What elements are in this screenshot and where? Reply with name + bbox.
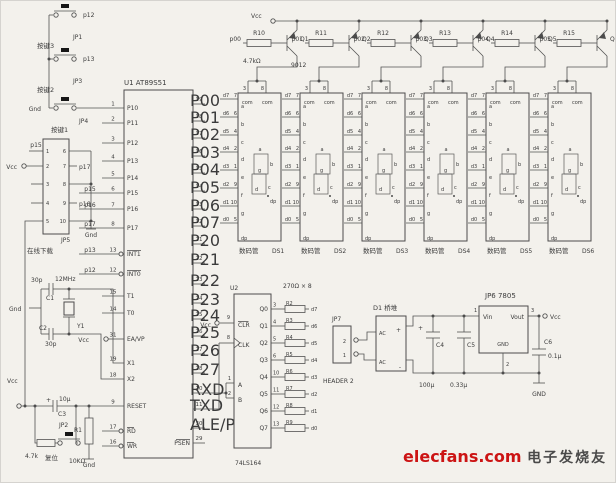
svg-text:6: 6	[482, 111, 485, 117]
svg-text:g: g	[427, 211, 430, 217]
svg-text:Gnd: Gnd	[29, 106, 41, 113]
svg-text:dp: dp	[580, 199, 586, 205]
mcu-pin-p22: 23P22	[190, 271, 220, 290]
svg-text:9: 9	[63, 201, 66, 207]
svg-text:p17: p17	[84, 221, 96, 228]
mcu-pin-psen: 29PSEN	[174, 436, 205, 447]
svg-text:d2: d2	[223, 182, 229, 188]
svg-text:c: c	[303, 140, 306, 146]
mcu-pin-p02: 37P02	[190, 125, 220, 144]
svg-text:2: 2	[544, 146, 547, 152]
svg-text:16: 16	[110, 440, 117, 446]
svg-text:d7: d7	[347, 93, 353, 99]
svg-text:P27: P27	[190, 360, 220, 379]
svg-text:f: f	[365, 193, 367, 199]
reset-circuit: Vcc+10μC3JP24.7k复位R110KΩGnd	[7, 378, 124, 469]
svg-text:P05: P05	[190, 178, 220, 197]
svg-text:JP2: JP2	[58, 422, 68, 429]
watermark-tld: com	[484, 447, 521, 466]
svg-text:b: b	[518, 162, 521, 168]
svg-text:d: d	[441, 187, 444, 193]
svg-text:P26: P26	[190, 341, 220, 360]
svg-text:dp: dp	[518, 199, 524, 205]
svg-text:HEADER 2: HEADER 2	[323, 378, 354, 385]
svg-text:dp: dp	[270, 199, 276, 205]
svg-text:10: 10	[60, 219, 66, 225]
svg-text:U2: U2	[230, 285, 238, 292]
svg-text:f: f	[241, 193, 243, 199]
svg-text:6: 6	[111, 187, 115, 193]
svg-text:p13: p13	[84, 247, 96, 254]
svg-text:p04: p04	[478, 36, 490, 43]
svg-text:74LS164: 74LS164	[235, 460, 261, 467]
mcu-pin-ale-p: 30ALE/P	[190, 415, 235, 434]
transistor-q1: p00R10Q14.7kΩ9012	[230, 20, 309, 83]
svg-text:10: 10	[479, 200, 485, 206]
transistor-q2: p01R11Q2	[292, 20, 371, 83]
mcu-pin-p04: 35P04	[190, 160, 220, 179]
mcu-u1: U1 AT89S511P102P113P124P135P14p156P15p16…	[78, 79, 235, 458]
svg-text:d: d	[489, 157, 492, 163]
svg-text:6: 6	[296, 111, 299, 117]
watermark-cn: 电子发烧友	[527, 450, 607, 466]
svg-text:3: 3	[273, 303, 276, 309]
svg-text:R13: R13	[439, 30, 451, 37]
svg-text:EA/VP: EA/VP	[127, 336, 145, 343]
svg-text:9: 9	[420, 182, 423, 188]
svg-text:a: a	[303, 104, 306, 110]
svg-text:3: 3	[553, 86, 556, 92]
svg-text:dp: dp	[303, 236, 309, 242]
svg-text:2: 2	[420, 146, 423, 152]
svg-text:9: 9	[544, 182, 547, 188]
crystal-circuit: Gnd30pC112MHzY1C230p	[9, 276, 124, 379]
svg-text:数码管: 数码管	[239, 246, 259, 255]
svg-text:d1: d1	[223, 200, 229, 206]
svg-text:P04: P04	[190, 160, 220, 179]
svg-text:d7: d7	[471, 93, 477, 99]
svg-text:INT0: INT0	[127, 271, 141, 278]
svg-text:dp: dp	[489, 236, 495, 242]
svg-text:5: 5	[111, 172, 115, 178]
svg-text:d5: d5	[471, 129, 477, 135]
svg-text:p02: p02	[354, 36, 366, 43]
svg-text:4: 4	[544, 129, 547, 135]
svg-text:数码管: 数码管	[363, 246, 383, 255]
svg-text:d: d	[427, 157, 430, 163]
svg-text:Vcc: Vcc	[6, 164, 17, 171]
svg-text:P14: P14	[127, 175, 138, 182]
display-ds4: 38comcomd77ad66bd54cd42dd31ed29fd110gd05…	[406, 81, 470, 255]
svg-text:9: 9	[111, 400, 115, 406]
mcu-pin-p11: 2P11	[102, 117, 138, 128]
svg-text:6: 6	[273, 354, 276, 360]
svg-text:c: c	[489, 140, 492, 146]
mcu-pin-txd: 11TXD	[189, 396, 223, 415]
svg-text:PSEN: PSEN	[174, 440, 190, 447]
mcu-pin-p12: 3P12	[102, 137, 138, 148]
svg-text:b: b	[489, 122, 492, 128]
svg-text:R10: R10	[253, 30, 265, 37]
svg-text:d: d	[551, 157, 554, 163]
svg-text:g: g	[320, 168, 323, 174]
svg-text:9: 9	[482, 182, 485, 188]
svg-text:c: c	[241, 140, 244, 146]
svg-text:f: f	[427, 193, 429, 199]
svg-text:P07: P07	[190, 213, 220, 232]
svg-text:C6: C6	[544, 339, 552, 346]
svg-text:P10: P10	[127, 105, 138, 112]
svg-text:Gnd: Gnd	[83, 462, 95, 469]
svg-text:g: g	[365, 211, 368, 217]
svg-text:d4: d4	[471, 146, 477, 152]
svg-text:Vcc: Vcc	[200, 322, 211, 329]
svg-text:b: b	[427, 122, 430, 128]
svg-text:g: g	[568, 168, 571, 174]
svg-text:d0: d0	[409, 217, 415, 223]
svg-text:5: 5	[296, 217, 299, 223]
svg-text:p05: p05	[540, 36, 552, 43]
svg-text:d3: d3	[285, 164, 291, 170]
svg-text:C4: C4	[436, 342, 444, 349]
svg-text:JP7: JP7	[331, 316, 341, 323]
svg-text:2: 2	[46, 164, 49, 170]
schematic-canvas: Gndp12JP1按键3p13JP3按键2JP4按键112345678910p1…	[0, 0, 616, 483]
svg-text:p12: p12	[84, 267, 96, 274]
svg-text:d5: d5	[311, 341, 317, 347]
svg-text:5: 5	[482, 217, 485, 223]
svg-text:d2: d2	[347, 182, 353, 188]
svg-text:d2: d2	[285, 182, 291, 188]
svg-text:d: d	[365, 157, 368, 163]
svg-text:d1: d1	[471, 200, 477, 206]
svg-text:e: e	[241, 175, 244, 181]
svg-text:d1: d1	[285, 200, 291, 206]
svg-text:a: a	[382, 147, 385, 153]
svg-text:8: 8	[447, 86, 450, 92]
svg-text:dp: dp	[551, 236, 557, 242]
svg-text:100μ: 100μ	[419, 382, 434, 389]
svg-text:C3: C3	[58, 411, 66, 418]
svg-text:Vcc: Vcc	[251, 13, 262, 20]
svg-text:按键3: 按键3	[37, 41, 54, 50]
svg-text:a: a	[365, 104, 368, 110]
svg-text:1: 1	[482, 164, 485, 170]
svg-text:Vin: Vin	[483, 314, 493, 321]
svg-text:数码管: 数码管	[425, 246, 445, 255]
svg-text:9: 9	[234, 182, 237, 188]
svg-text:p15: p15	[30, 142, 42, 149]
svg-text:4: 4	[111, 155, 115, 161]
svg-text:7: 7	[111, 203, 115, 209]
mcu-pin-p05: 34P05	[190, 178, 220, 197]
ladder-r3: Q14R3d6	[259, 318, 317, 330]
svg-text:d: d	[255, 187, 258, 193]
svg-text:P16: P16	[127, 206, 138, 213]
svg-text:C2: C2	[39, 325, 47, 332]
svg-text:1: 1	[234, 164, 237, 170]
svg-text:Q7: Q7	[259, 425, 268, 432]
mcu-pin-p07: 32P07	[190, 213, 220, 232]
svg-text:g: g	[303, 211, 306, 217]
svg-text:2: 2	[343, 339, 346, 345]
svg-text:5: 5	[234, 217, 237, 223]
svg-text:f: f	[489, 193, 491, 199]
svg-text:g: g	[258, 168, 261, 174]
svg-text:3: 3	[531, 308, 534, 314]
svg-text:d6: d6	[533, 111, 539, 117]
svg-text:d0: d0	[311, 426, 317, 432]
svg-text:a: a	[320, 147, 323, 153]
svg-text:d: d	[503, 187, 506, 193]
svg-text:8: 8	[63, 182, 66, 188]
svg-text:Vcc: Vcc	[7, 378, 18, 385]
power-section: JP721HEADER 2D1 桥堆AC+AC-+C4100μC50.33μJP…	[323, 292, 562, 398]
svg-text:4: 4	[358, 129, 361, 135]
svg-text:0.1μ: 0.1μ	[548, 353, 562, 360]
svg-text:7: 7	[63, 164, 66, 170]
mcu-pin-t0: 14T0	[102, 307, 135, 318]
svg-text:c: c	[365, 140, 368, 146]
svg-text:R15: R15	[563, 30, 575, 37]
svg-text:d4: d4	[533, 146, 539, 152]
svg-text:10: 10	[541, 200, 547, 206]
svg-text:7: 7	[358, 93, 361, 99]
svg-text:29: 29	[196, 436, 203, 442]
svg-text:P17: P17	[127, 225, 138, 232]
svg-text:3: 3	[111, 137, 115, 143]
push-button-1: p12JP1按键3	[37, 4, 95, 50]
svg-text:R1: R1	[74, 427, 82, 434]
svg-text:Q3: Q3	[259, 357, 268, 364]
svg-text:a: a	[551, 104, 554, 110]
svg-text:p01: p01	[292, 36, 304, 43]
svg-text:按键1: 按键1	[51, 125, 68, 134]
svg-text:12: 12	[273, 405, 279, 411]
svg-text:5: 5	[420, 217, 423, 223]
svg-text:d5: d5	[223, 129, 229, 135]
svg-text:Q4: Q4	[259, 374, 268, 381]
display-ds3: 38comcomd77ad66bd54cd42dd31ed29fd110gd05…	[344, 81, 408, 255]
svg-text:2: 2	[296, 146, 299, 152]
svg-text:a: a	[444, 147, 447, 153]
svg-text:a: a	[489, 104, 492, 110]
svg-text:5: 5	[358, 217, 361, 223]
svg-text:f: f	[303, 193, 305, 199]
svg-text:dp: dp	[241, 236, 247, 242]
svg-text:d: d	[317, 187, 320, 193]
svg-text:4.7k: 4.7k	[25, 453, 39, 460]
svg-text:数码管: 数码管	[549, 246, 569, 255]
svg-text:7: 7	[420, 93, 423, 99]
svg-text:com: com	[510, 100, 521, 106]
mcu-pin-p16: p167P16	[79, 202, 138, 213]
svg-text:a: a	[258, 147, 261, 153]
svg-text:dp: dp	[427, 236, 433, 242]
svg-text:Q2: Q2	[259, 340, 268, 347]
svg-text:JP1: JP1	[72, 34, 82, 41]
svg-text:4: 4	[420, 129, 423, 135]
svg-text:d0: d0	[533, 217, 539, 223]
svg-text:c: c	[454, 185, 457, 191]
svg-text:10: 10	[355, 200, 361, 206]
ladder-r6: Q410R6d3	[259, 369, 317, 381]
svg-text:6: 6	[63, 149, 66, 155]
svg-text:17: 17	[110, 425, 117, 431]
svg-text:AC: AC	[379, 331, 386, 337]
svg-text:c: c	[268, 185, 271, 191]
display-ds5: 38comcomd77ad66bd54cd42dd31ed29fd110gd05…	[468, 81, 532, 255]
svg-text:d7: d7	[285, 93, 291, 99]
svg-text:INT1: INT1	[127, 251, 141, 258]
svg-text:1: 1	[343, 353, 346, 359]
svg-text:2: 2	[506, 362, 509, 368]
svg-text:p03: p03	[416, 36, 428, 43]
svg-text:d3: d3	[409, 164, 415, 170]
ladder-r2: Q03R2d7	[259, 301, 317, 313]
svg-text:10: 10	[273, 371, 279, 377]
svg-text:p16: p16	[84, 202, 96, 209]
svg-text:+: +	[46, 397, 51, 404]
svg-text:6: 6	[544, 111, 547, 117]
svg-text:d: d	[565, 187, 568, 193]
svg-text:a: a	[506, 147, 509, 153]
svg-text:12MHz: 12MHz	[55, 276, 75, 283]
svg-text:9: 9	[296, 182, 299, 188]
svg-text:d2: d2	[533, 182, 539, 188]
svg-text:p15: p15	[84, 186, 96, 193]
svg-text:2: 2	[228, 391, 231, 397]
svg-text:270Ω × 8: 270Ω × 8	[283, 283, 312, 290]
svg-text:13: 13	[110, 248, 117, 254]
svg-text:0.33μ: 0.33μ	[450, 382, 467, 389]
svg-text:1: 1	[420, 164, 423, 170]
svg-text:5: 5	[46, 219, 49, 225]
svg-text:p13: p13	[83, 56, 95, 63]
svg-text:3: 3	[305, 86, 308, 92]
mcu-pin-int1: p1313INT1	[79, 247, 141, 258]
watermark-site: elecfans	[403, 447, 478, 466]
svg-text:d1: d1	[347, 200, 353, 206]
svg-text:g: g	[444, 168, 447, 174]
svg-text:P20: P20	[190, 231, 220, 250]
svg-text:d0: d0	[347, 217, 353, 223]
svg-text:d3: d3	[533, 164, 539, 170]
driver-row: Vccp00R10Q14.7kΩ9012p01R11Q2p02R12Q3p03R…	[230, 13, 616, 83]
svg-text:dp: dp	[365, 236, 371, 242]
svg-text:6: 6	[358, 111, 361, 117]
svg-text:4: 4	[273, 320, 276, 326]
svg-text:10μ: 10μ	[59, 396, 71, 403]
display-ds2: 38comcomd77ad66bd54cd42dd31ed29fd110gd05…	[282, 81, 346, 255]
svg-text:8: 8	[509, 86, 512, 92]
svg-text:d: d	[241, 157, 244, 163]
svg-text:d2: d2	[311, 392, 317, 398]
svg-text:R11: R11	[315, 30, 327, 37]
push-button-3: JP4按键1	[49, 97, 88, 134]
svg-text:e: e	[365, 175, 368, 181]
svg-text:d4: d4	[347, 146, 353, 152]
svg-text:GND: GND	[532, 391, 546, 398]
svg-text:g: g	[241, 211, 244, 217]
mcu-pin-p27: 28P27	[190, 360, 220, 379]
svg-text:com: com	[572, 100, 583, 106]
svg-text:dp: dp	[456, 199, 462, 205]
svg-text:DS3: DS3	[396, 248, 408, 255]
svg-text:b: b	[394, 162, 397, 168]
svg-text:Vcc: Vcc	[550, 314, 561, 321]
transistor-q5: p04R14Q5	[478, 20, 557, 83]
svg-text:com: com	[324, 100, 335, 106]
mcu-pin-wr: 16WR	[102, 440, 137, 451]
svg-text:7: 7	[482, 93, 485, 99]
svg-text:10: 10	[231, 200, 237, 206]
svg-text:C5: C5	[467, 342, 475, 349]
svg-text:P12: P12	[127, 140, 138, 147]
svg-text:+: +	[418, 325, 423, 332]
ladder-r8: Q612R8d1	[259, 403, 317, 415]
svg-text:4: 4	[46, 201, 49, 207]
svg-text:d0: d0	[285, 217, 291, 223]
mcu-pin-p17: p178P17	[79, 221, 138, 232]
svg-text:2: 2	[358, 146, 361, 152]
svg-text:DS2: DS2	[334, 248, 346, 255]
svg-text:8: 8	[227, 335, 230, 341]
svg-text:11: 11	[273, 388, 279, 394]
mcu-pin-p15: p156P15	[79, 186, 138, 197]
svg-text:com: com	[386, 100, 397, 106]
svg-text:4: 4	[296, 129, 299, 135]
svg-text:RESET: RESET	[127, 403, 147, 410]
svg-text:AC: AC	[379, 360, 386, 366]
svg-text:10: 10	[293, 200, 299, 206]
svg-text:7: 7	[296, 93, 299, 99]
svg-text:U1 AT89S51: U1 AT89S51	[124, 79, 167, 87]
svg-text:Vcc: Vcc	[78, 337, 89, 344]
svg-text:TXD: TXD	[189, 396, 223, 415]
svg-text:g: g	[382, 168, 385, 174]
svg-text:30p: 30p	[31, 277, 43, 284]
svg-text:d6: d6	[311, 324, 317, 330]
svg-text:Y1: Y1	[76, 323, 85, 330]
svg-text:Gnd: Gnd	[9, 306, 21, 313]
mcu-pin-p13: 4P13	[102, 155, 138, 166]
svg-text:按键2: 按键2	[37, 85, 54, 94]
svg-text:f: f	[551, 193, 553, 199]
svg-text:3: 3	[491, 86, 494, 92]
svg-text:X1: X1	[127, 360, 135, 367]
svg-text:18: 18	[110, 373, 117, 379]
svg-text:6: 6	[234, 111, 237, 117]
svg-text:d2: d2	[471, 182, 477, 188]
svg-text:5: 5	[544, 217, 547, 223]
svg-text:d6: d6	[223, 111, 229, 117]
svg-text:D1 桥堆: D1 桥堆	[373, 303, 398, 312]
mcu-pin-p26: 27P26	[190, 341, 220, 360]
svg-text:1: 1	[228, 376, 231, 382]
svg-text:8: 8	[261, 86, 264, 92]
svg-text:p12: p12	[83, 12, 95, 19]
mcu-pin-reset: 9RESET	[111, 400, 146, 411]
svg-text:d3: d3	[471, 164, 477, 170]
svg-text:8: 8	[323, 86, 326, 92]
svg-text:b: b	[456, 162, 459, 168]
svg-text:3: 3	[429, 86, 432, 92]
svg-text:Q6: Q6	[259, 408, 268, 415]
display-ds1: 38comcomd77ad66bd54cd42dd31ed29fd110gd05…	[220, 81, 284, 255]
svg-text:d: d	[379, 187, 382, 193]
svg-text:Vout: Vout	[511, 314, 525, 321]
